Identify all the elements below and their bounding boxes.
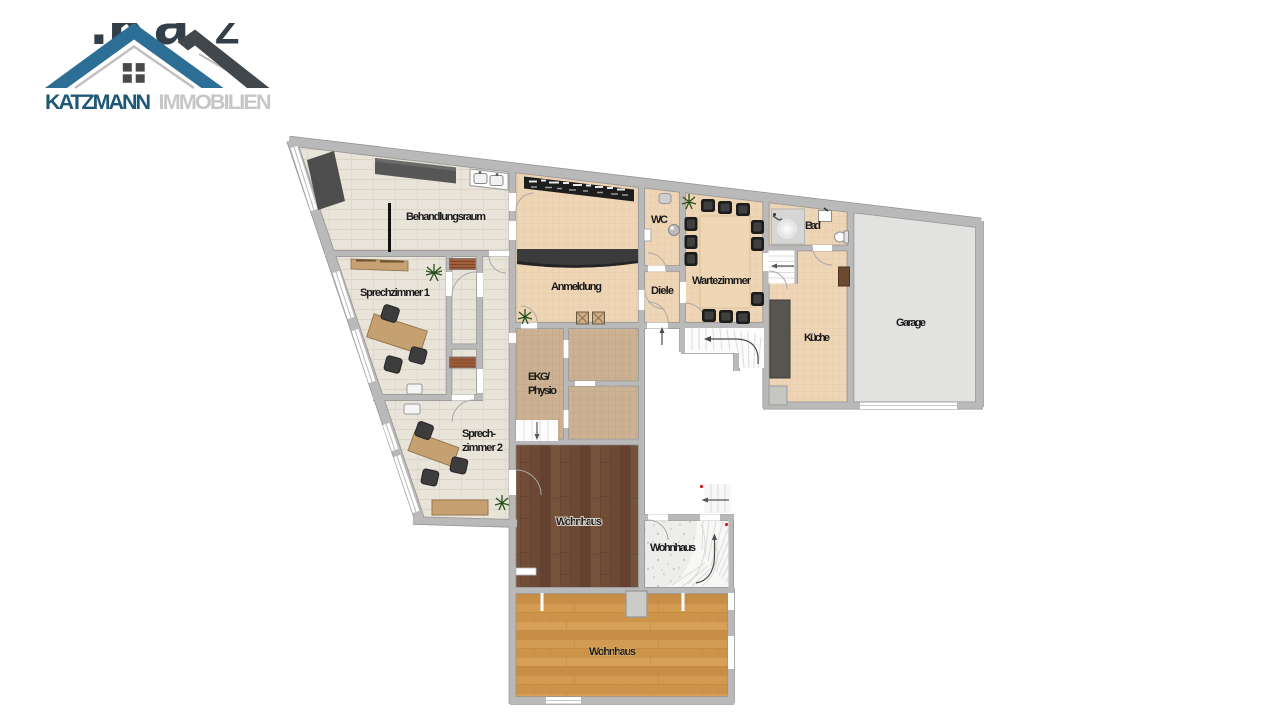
svg-text:IMMOBILIEN: IMMOBILIEN — [159, 90, 272, 114]
svg-text:Sprechzimmer 1: Sprechzimmer 1 — [360, 287, 430, 299]
svg-text:Garage: Garage — [896, 317, 926, 329]
svg-text:Diele: Diele — [651, 285, 674, 297]
svg-text:Sprech-: Sprech- — [462, 428, 496, 440]
svg-text:Bad: Bad — [805, 220, 821, 232]
svg-text:zimmer 2: zimmer 2 — [462, 442, 503, 454]
svg-text:Wohnhaus: Wohnhaus — [589, 646, 636, 658]
svg-text:Behandlungsraum: Behandlungsraum — [406, 211, 486, 223]
svg-text:KATZMANN: KATZMANN — [45, 90, 151, 114]
svg-text:Physio: Physio — [528, 385, 557, 397]
svg-text:Küche: Küche — [804, 332, 830, 344]
svg-text:Anmeldung: Anmeldung — [551, 281, 602, 293]
svg-text:EKG/: EKG/ — [528, 371, 550, 383]
svg-text:Wohnhaus: Wohnhaus — [650, 542, 696, 554]
svg-text:Wohnhaus: Wohnhaus — [556, 516, 602, 528]
svg-text:WC: WC — [651, 214, 668, 226]
svg-text:Wartezimmer: Wartezimmer — [692, 275, 752, 287]
